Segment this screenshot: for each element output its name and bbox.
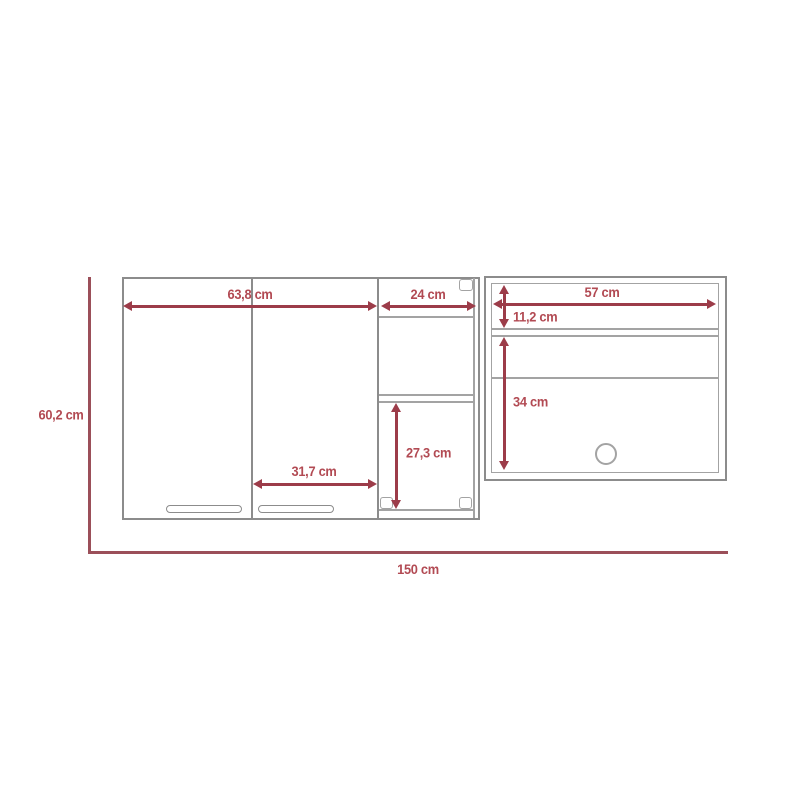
dim-open-lower-height-arrow-up	[391, 403, 401, 412]
right-mid-line	[492, 377, 719, 379]
dim-doors-width-label: 63,8 cm	[227, 287, 272, 302]
dim-right-top-gap-label: 11,2 cm	[513, 310, 557, 325]
dim-right-width-arrow-right	[707, 299, 716, 309]
dim-single-door-width-label: 31,7 cm	[291, 464, 336, 479]
dim-right-top-gap-arrow-up	[499, 285, 509, 294]
dim-right-open-height-arrow-down	[499, 461, 509, 470]
dim-open-width-line	[388, 305, 469, 308]
dim-single-door-width-line	[260, 483, 370, 486]
dim-total-width-line	[88, 551, 728, 554]
dim-total-width-label: 150 cm	[397, 562, 439, 577]
open-middle-shelf-line-top	[379, 394, 473, 396]
open-section-left-edge	[377, 277, 379, 520]
dim-open-width-arrow-right	[467, 301, 476, 311]
left-door-handle	[166, 505, 242, 513]
right-shelf-line-bottom	[492, 335, 719, 337]
dim-right-open-height-label: 34 cm	[513, 395, 548, 410]
hinge-bracket-bottom-right	[459, 497, 472, 509]
dim-right-width-arrow-left	[493, 299, 502, 309]
right-door-handle	[258, 505, 334, 513]
dim-single-door-width-arrow-right	[368, 479, 377, 489]
open-bottom-line	[379, 509, 473, 511]
open-top-rail-line	[379, 316, 473, 318]
open-section-right-panel-line	[473, 278, 475, 518]
right-shelf-line-top	[492, 328, 719, 330]
dim-open-width-arrow-left	[381, 301, 390, 311]
dim-right-width-label: 57 cm	[585, 285, 620, 300]
dim-open-lower-height-line	[395, 410, 398, 502]
dim-right-open-height-arrow-up	[499, 337, 509, 346]
cable-hole	[595, 443, 617, 465]
dim-total-height-line	[88, 277, 91, 553]
dim-right-top-gap-arrow-down	[499, 319, 509, 328]
dim-single-door-width-arrow-left	[253, 479, 262, 489]
cabinet-dimension-diagram: 63,8 cm 24 cm 57 cm 11,2 cm 34 cm 27,3 c…	[0, 0, 800, 800]
hinge-bracket-top-right	[459, 279, 473, 291]
dim-right-top-gap-line	[503, 292, 506, 320]
dim-doors-width-arrow-left	[123, 301, 132, 311]
dim-open-lower-height-arrow-down	[391, 500, 401, 509]
dim-doors-width-arrow-right	[368, 301, 377, 311]
dim-right-open-height-line	[503, 344, 506, 462]
dim-open-width-label: 24 cm	[411, 287, 446, 302]
dim-open-lower-height-label: 27,3 cm	[406, 446, 451, 461]
dim-right-width-line	[500, 303, 710, 306]
dim-doors-width-line	[130, 305, 370, 308]
dim-total-height-label: 60,2 cm	[38, 408, 83, 423]
